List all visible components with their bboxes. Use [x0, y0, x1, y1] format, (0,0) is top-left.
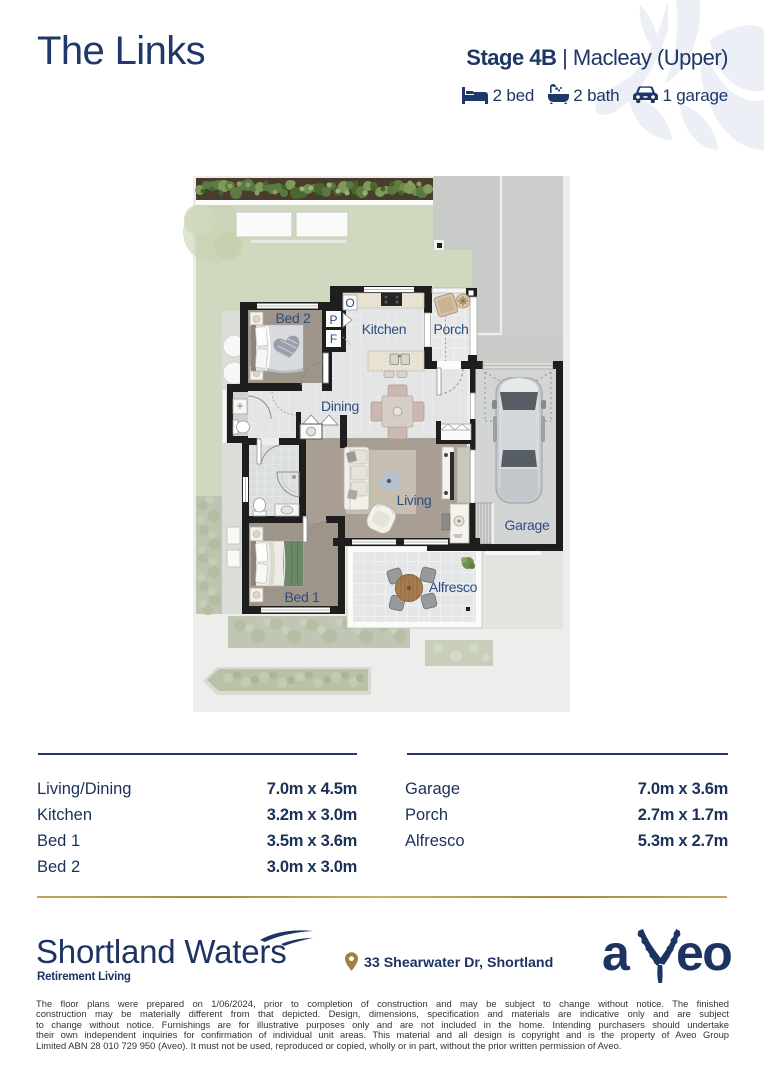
svg-text:P: P — [329, 313, 337, 327]
svg-text:Bed 1: Bed 1 — [284, 589, 320, 605]
svg-text:Alfresco: Alfresco — [429, 579, 478, 595]
svg-text:Porch: Porch — [433, 321, 468, 337]
svg-text:Kitchen: Kitchen — [362, 321, 407, 337]
svg-text:O: O — [345, 296, 354, 310]
svg-text:Living: Living — [397, 492, 432, 508]
svg-text:F: F — [330, 332, 337, 346]
svg-text:Bed 2: Bed 2 — [275, 310, 311, 326]
svg-text:Garage: Garage — [505, 517, 550, 533]
svg-text:Dining: Dining — [321, 398, 359, 414]
